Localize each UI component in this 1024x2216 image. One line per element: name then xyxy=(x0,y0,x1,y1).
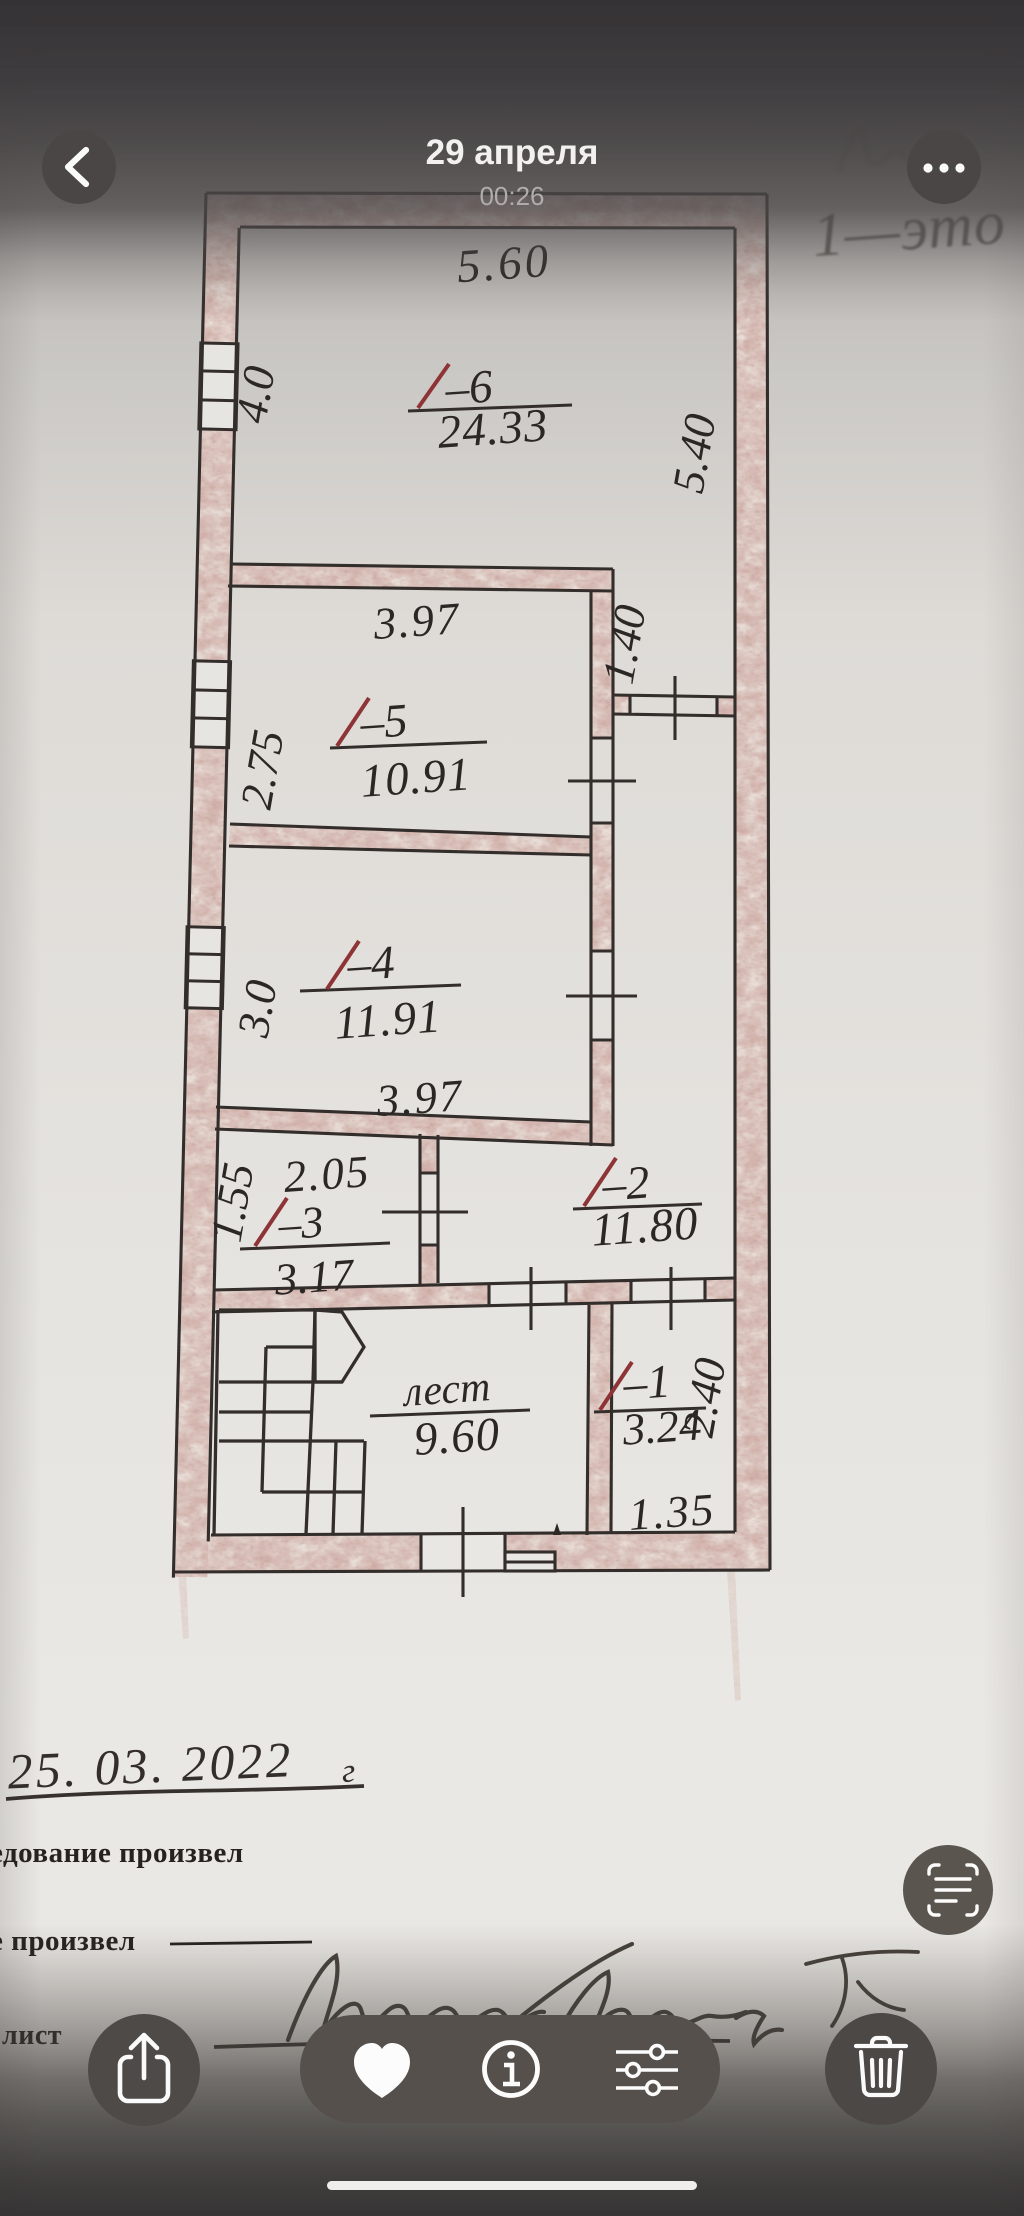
svg-text:9.60: 9.60 xyxy=(412,1408,502,1466)
svg-text:1.35: 1.35 xyxy=(627,1484,717,1540)
svg-text:11.80: 11.80 xyxy=(590,1197,701,1256)
svg-text:4.0: 4.0 xyxy=(226,362,285,426)
svg-text:3.97: 3.97 xyxy=(374,1070,466,1126)
svg-text:10.91: 10.91 xyxy=(359,748,473,808)
svg-text:2.05: 2.05 xyxy=(282,1146,372,1202)
svg-text:лест: лест xyxy=(400,1364,491,1416)
svg-text:едование произвел: едование произвел xyxy=(0,1837,244,1869)
svg-text:11.91: 11.91 xyxy=(333,990,444,1049)
svg-text:3.97: 3.97 xyxy=(371,593,463,649)
svg-text:3.0: 3.0 xyxy=(228,976,287,1041)
svg-text:00:26: 00:26 xyxy=(479,181,544,211)
svg-text:24.33: 24.33 xyxy=(436,399,550,459)
svg-text:г: г xyxy=(341,1752,356,1790)
svg-text:3.17: 3.17 xyxy=(272,1249,358,1305)
svg-text:–4: –4 xyxy=(345,936,397,991)
svg-text:29 апреля: 29 апреля xyxy=(426,133,599,172)
